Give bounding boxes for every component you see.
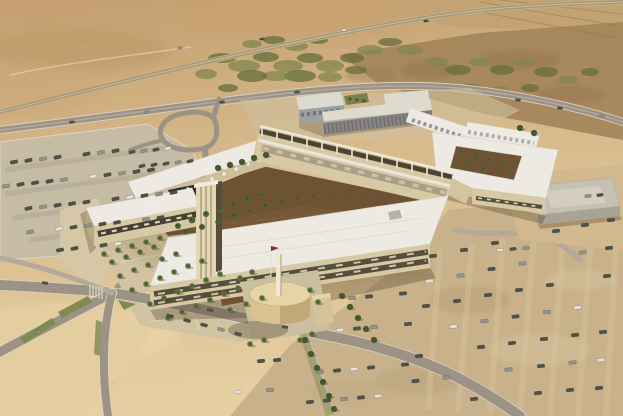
tree-shade <box>218 207 221 210</box>
umbrella <box>400 210 403 213</box>
car <box>497 248 504 252</box>
tree-shade <box>488 158 490 160</box>
car <box>605 246 613 250</box>
car <box>453 299 461 303</box>
car <box>477 345 485 349</box>
hedge-tree <box>339 293 345 299</box>
car <box>512 314 520 318</box>
palm-core <box>159 277 161 279</box>
car <box>365 294 373 298</box>
car <box>599 330 607 334</box>
palm-core <box>159 237 161 239</box>
car <box>306 400 314 404</box>
car <box>340 397 348 401</box>
car <box>282 325 288 328</box>
car <box>457 273 465 277</box>
tree-shade <box>260 193 262 195</box>
palm-core <box>133 269 135 271</box>
car <box>534 391 542 395</box>
vegetation-patch <box>318 72 342 82</box>
tree <box>382 197 386 201</box>
palm-core <box>223 293 225 295</box>
car <box>423 20 428 23</box>
umbrella <box>376 206 379 209</box>
hedge-tree <box>355 315 361 321</box>
palm-core <box>111 261 113 263</box>
tree-shade <box>503 163 505 165</box>
car <box>519 261 527 265</box>
car <box>597 358 605 362</box>
palm-core <box>311 333 313 335</box>
tree-shade <box>200 225 203 228</box>
palm-core <box>117 249 119 251</box>
car <box>426 279 434 283</box>
car <box>607 218 615 222</box>
vegetation-patch <box>534 67 558 77</box>
palm-core <box>125 256 127 258</box>
car <box>515 98 520 101</box>
tree-shade <box>467 163 469 165</box>
car <box>552 229 560 233</box>
car <box>595 386 603 390</box>
palm-core <box>195 305 197 307</box>
car <box>491 241 499 245</box>
palm-core <box>187 265 189 267</box>
car <box>42 281 48 284</box>
vegetation-patch <box>445 65 471 75</box>
tree-shade <box>383 198 385 200</box>
tree-shade <box>349 98 351 100</box>
palm-core <box>175 253 177 255</box>
vegetation-patch <box>424 57 448 67</box>
car <box>484 293 492 297</box>
car <box>540 337 548 341</box>
car <box>585 194 592 198</box>
car <box>515 288 523 292</box>
tree <box>364 196 368 200</box>
tree-shade <box>474 154 476 156</box>
car <box>579 250 587 254</box>
car <box>370 325 378 329</box>
umbrella <box>186 187 189 190</box>
car <box>429 254 437 258</box>
hedge-tree <box>308 351 314 357</box>
car <box>404 322 412 326</box>
car <box>234 390 242 394</box>
palm-core <box>145 241 147 243</box>
tree-shade <box>184 230 186 232</box>
vegetation-patch <box>237 70 267 82</box>
palm-core <box>261 297 263 299</box>
car <box>415 354 423 358</box>
tree-shade <box>246 197 249 200</box>
car <box>350 367 358 371</box>
car <box>488 267 496 271</box>
vegetation-patch <box>521 84 539 92</box>
car <box>399 291 407 295</box>
vegetation-patch <box>397 45 423 55</box>
car <box>450 324 458 328</box>
hedge-tree <box>326 393 332 399</box>
palm-core <box>147 264 149 266</box>
car <box>333 368 341 372</box>
tree-shade <box>356 99 358 101</box>
car <box>257 359 265 363</box>
palm-core <box>103 253 105 255</box>
hedge-tree <box>263 152 269 158</box>
car <box>523 246 530 250</box>
car <box>603 274 611 278</box>
palm-core <box>229 309 231 311</box>
hedge-tree <box>517 125 523 131</box>
tree-shade <box>204 212 207 215</box>
hedge-tree <box>531 130 537 136</box>
car <box>581 223 589 227</box>
tree-shade <box>347 196 349 198</box>
car <box>508 341 516 345</box>
palm-core <box>173 271 175 273</box>
hedge-tree <box>215 165 221 171</box>
vegetation-patch <box>490 65 514 75</box>
palm-core <box>317 301 319 303</box>
palm-core <box>139 251 141 253</box>
palm-core <box>299 339 301 341</box>
car <box>273 358 281 362</box>
aerial-rendering <box>0 0 623 416</box>
hedge-tree <box>227 162 233 168</box>
car <box>597 193 604 197</box>
palm-core <box>237 287 239 289</box>
car <box>401 362 409 366</box>
palm-core <box>245 303 247 305</box>
vegetation-patch <box>218 84 238 92</box>
car <box>177 47 182 50</box>
car <box>323 398 331 402</box>
tree <box>362 99 366 103</box>
vegetation-patch <box>345 66 367 74</box>
car <box>422 304 430 308</box>
palm-core <box>131 289 133 291</box>
umbrella <box>198 182 201 185</box>
palm-core <box>181 311 183 313</box>
car <box>316 370 324 374</box>
car <box>505 367 513 371</box>
vegetation-patch <box>316 60 344 72</box>
car <box>460 248 468 252</box>
umbrella <box>234 167 237 170</box>
vegetation-patch <box>469 58 491 66</box>
palm-core <box>119 275 121 277</box>
tree-shade <box>232 202 235 205</box>
car <box>69 120 74 123</box>
tree-shade <box>329 195 331 197</box>
palm-core <box>163 297 165 299</box>
palm-core <box>205 279 207 281</box>
palm-core <box>239 277 241 279</box>
car <box>566 388 574 392</box>
car <box>569 360 577 364</box>
car <box>599 114 604 117</box>
hedge-tree <box>363 326 369 332</box>
palm-core <box>219 273 221 275</box>
car <box>357 395 365 399</box>
tree-shade <box>280 200 282 202</box>
hedge-tree <box>239 159 245 165</box>
car <box>219 100 224 103</box>
palm-core <box>309 289 311 291</box>
hedge-tree <box>314 365 320 371</box>
palm-core <box>263 339 265 341</box>
palm-core <box>161 258 163 260</box>
umbrella <box>388 208 391 211</box>
palm-core <box>191 285 193 287</box>
vegetation-patch <box>513 58 535 66</box>
vegetation-patch <box>340 53 364 63</box>
palm-core <box>131 245 133 247</box>
car <box>336 328 344 332</box>
car <box>374 394 382 398</box>
palm-core <box>149 303 151 305</box>
car <box>266 388 274 392</box>
vegetation-patch <box>378 38 402 46</box>
vegetation-patch <box>297 53 323 63</box>
tree-shade <box>363 100 365 102</box>
car <box>571 333 579 337</box>
tree-shade <box>248 209 250 211</box>
hedge-tree <box>347 304 353 310</box>
tree <box>355 98 359 102</box>
tree-shade <box>497 171 499 173</box>
car <box>348 296 356 300</box>
palm-core <box>209 299 211 301</box>
tree <box>348 97 352 101</box>
tree-shade <box>312 195 314 197</box>
car <box>412 379 420 383</box>
car <box>543 310 551 314</box>
palm-core <box>251 271 253 273</box>
car <box>443 375 451 379</box>
entrance-tower <box>194 180 222 280</box>
car <box>144 110 149 113</box>
tree-shade <box>264 204 267 207</box>
car <box>367 365 375 369</box>
car <box>259 38 264 41</box>
palm-core <box>153 246 155 248</box>
hedge-tree <box>331 406 337 412</box>
palm-core <box>249 343 251 345</box>
car <box>341 29 346 32</box>
car <box>294 90 299 93</box>
palm-core <box>145 283 147 285</box>
tree-shade <box>460 150 462 152</box>
palm-core <box>177 291 179 293</box>
umbrella <box>150 202 153 205</box>
tree-shade <box>482 167 484 169</box>
tree-shade <box>216 220 219 223</box>
car <box>353 326 361 330</box>
rendering-canvas <box>0 0 623 416</box>
hedge-tree <box>320 379 326 385</box>
car <box>574 305 582 309</box>
car <box>481 319 489 323</box>
umbrella <box>210 177 213 180</box>
umbrella <box>222 172 225 175</box>
car <box>470 397 478 401</box>
tree-shade <box>190 218 193 221</box>
tree-shade <box>365 197 367 199</box>
umbrella <box>162 197 165 200</box>
hedge-tree <box>251 155 257 161</box>
car <box>546 283 554 287</box>
vegetation-patch <box>558 76 578 84</box>
tree-shade <box>176 224 179 227</box>
vegetation-patch <box>242 40 262 48</box>
car <box>557 106 562 109</box>
tree-shade <box>296 197 298 199</box>
car <box>207 308 213 311</box>
vegetation-patch <box>195 69 217 79</box>
tree-shade <box>232 214 235 217</box>
hedge-tree <box>371 337 377 343</box>
vegetation-patch <box>357 45 383 55</box>
vegetation-patch <box>581 68 599 76</box>
car <box>537 364 545 368</box>
car <box>510 247 517 251</box>
palm-core <box>201 260 203 262</box>
